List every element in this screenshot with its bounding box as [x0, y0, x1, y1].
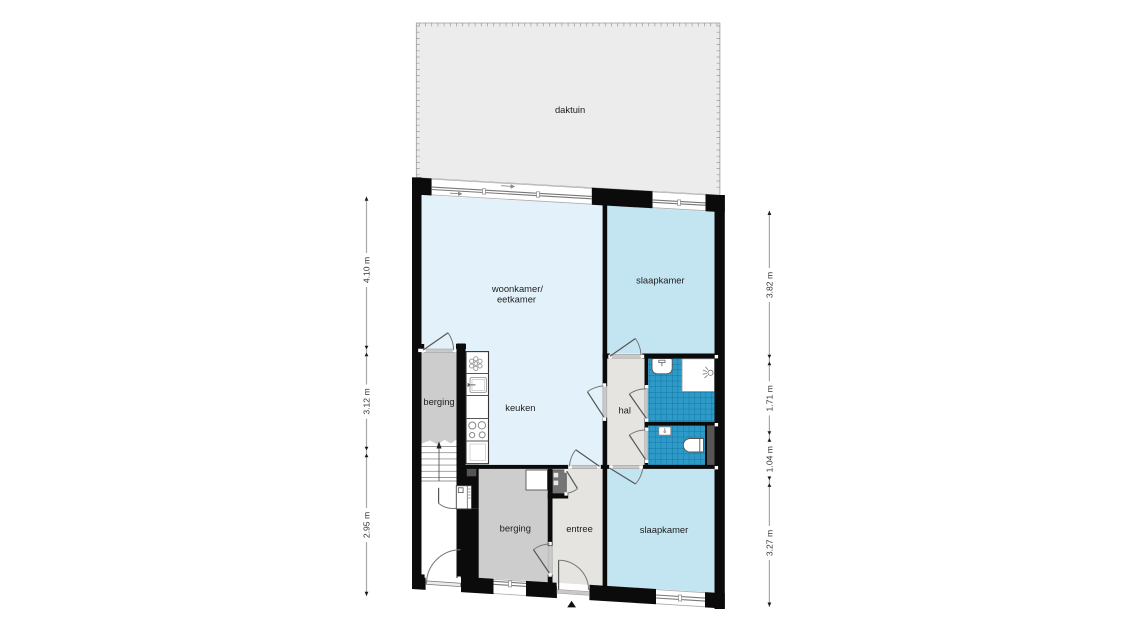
svg-text:2.95 m: 2.95 m	[362, 512, 372, 538]
svg-text:3.27 m: 3.27 m	[764, 530, 774, 556]
svg-text:daktuin: daktuin	[555, 104, 585, 115]
svg-text:slaapkamer: slaapkamer	[636, 275, 684, 286]
svg-text:3.12 m: 3.12 m	[362, 388, 372, 414]
svg-text:1.71 m: 1.71 m	[764, 385, 774, 411]
svg-text:4.10 m: 4.10 m	[362, 257, 372, 283]
svg-text:berging: berging	[500, 523, 531, 534]
svg-text:entree: entree	[566, 523, 593, 534]
svg-text:slaapkamer: slaapkamer	[640, 524, 688, 535]
svg-text:3.82 m: 3.82 m	[764, 272, 774, 298]
svg-text:hal: hal	[618, 404, 631, 415]
svg-text:1.04 m: 1.04 m	[764, 446, 774, 472]
svg-text:eetkamer: eetkamer	[497, 293, 536, 304]
svg-text:keuken: keuken	[505, 402, 535, 413]
svg-text:berging: berging	[423, 396, 454, 407]
